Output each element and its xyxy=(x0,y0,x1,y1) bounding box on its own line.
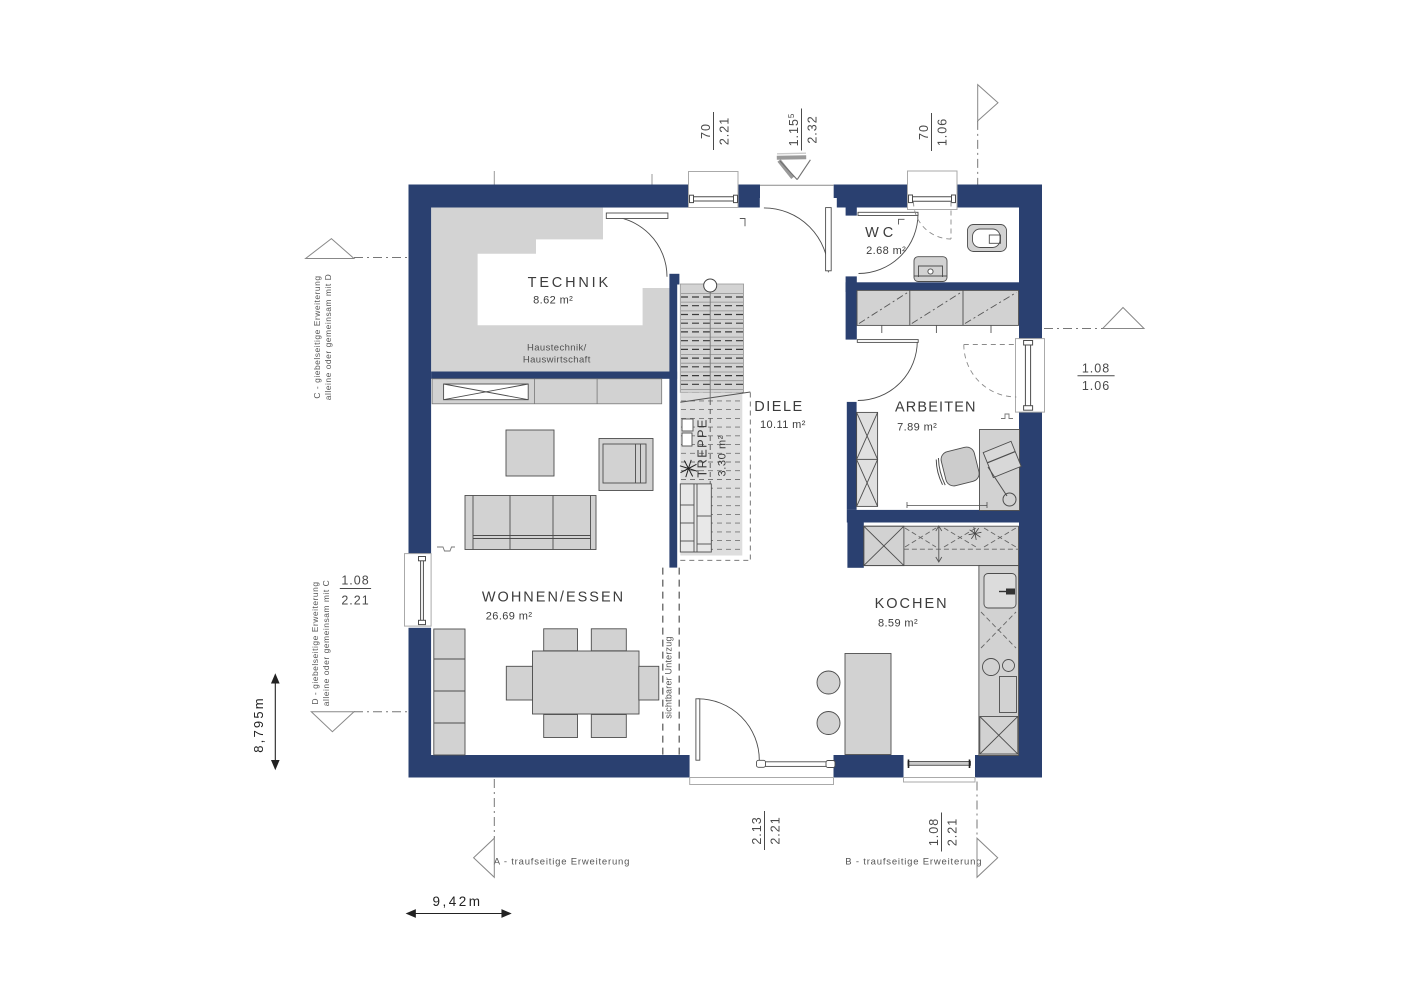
svg-text:70: 70 xyxy=(699,123,713,139)
svg-text:70: 70 xyxy=(917,124,931,140)
svg-text:3.30 m²: 3.30 m² xyxy=(717,435,729,477)
svg-text:DIELE: DIELE xyxy=(754,399,803,415)
svg-text:TECHNIK: TECHNIK xyxy=(528,275,611,291)
svg-text:1.08: 1.08 xyxy=(341,574,369,588)
svg-text:alleine oder gemeinsam mit D: alleine oder gemeinsam mit D xyxy=(323,274,333,400)
svg-text:26.69 m²: 26.69 m² xyxy=(486,611,533,623)
svg-text:2.68 m²: 2.68 m² xyxy=(866,245,906,257)
svg-text:C - giebelseitige Erweiterung: C - giebelseitige Erweiterung xyxy=(312,275,322,398)
svg-text:8,795m: 8,795m xyxy=(251,696,266,753)
svg-text:2.21: 2.21 xyxy=(769,816,783,844)
svg-text:10.11 m²: 10.11 m² xyxy=(760,419,806,431)
svg-text:1.08: 1.08 xyxy=(1082,362,1110,376)
svg-text:KOCHEN: KOCHEN xyxy=(875,596,949,612)
svg-text:ARBEITEN: ARBEITEN xyxy=(895,400,977,416)
svg-text:WC: WC xyxy=(865,225,897,241)
svg-text:8.62 m²: 8.62 m² xyxy=(533,295,573,307)
svg-text:sichtbarer Unterzug: sichtbarer Unterzug xyxy=(664,636,674,718)
svg-text:1.06: 1.06 xyxy=(936,118,950,146)
svg-text:B - traufseitige Erweiterung: B - traufseitige Erweiterung xyxy=(845,857,982,868)
svg-text:A - traufseitige Erweiterung: A - traufseitige Erweiterung xyxy=(494,857,630,868)
svg-text:2.21: 2.21 xyxy=(341,594,369,608)
svg-text:2.32: 2.32 xyxy=(806,115,820,143)
svg-text:9,42m: 9,42m xyxy=(432,894,482,909)
svg-text:1.08: 1.08 xyxy=(927,818,941,846)
svg-text:Haustechnik/: Haustechnik/ xyxy=(527,343,587,354)
svg-text:alleine oder gemeinsam mit C: alleine oder gemeinsam mit C xyxy=(321,580,331,706)
svg-text:8.59 m²: 8.59 m² xyxy=(878,617,918,629)
svg-text:2.21: 2.21 xyxy=(946,818,960,846)
svg-text:TREPPE: TREPPE xyxy=(694,418,709,477)
svg-text:D - giebelseitige Erweiterung: D - giebelseitige Erweiterung xyxy=(310,581,320,704)
svg-text:WOHNEN/ESSEN: WOHNEN/ESSEN xyxy=(482,590,625,606)
svg-text:Hauswirtschaft: Hauswirtschaft xyxy=(523,355,591,366)
svg-text:7.89 m²: 7.89 m² xyxy=(897,422,937,434)
svg-text:2.13: 2.13 xyxy=(750,816,764,844)
svg-text:2.21: 2.21 xyxy=(718,117,732,145)
svg-text:1.06: 1.06 xyxy=(1082,379,1110,393)
